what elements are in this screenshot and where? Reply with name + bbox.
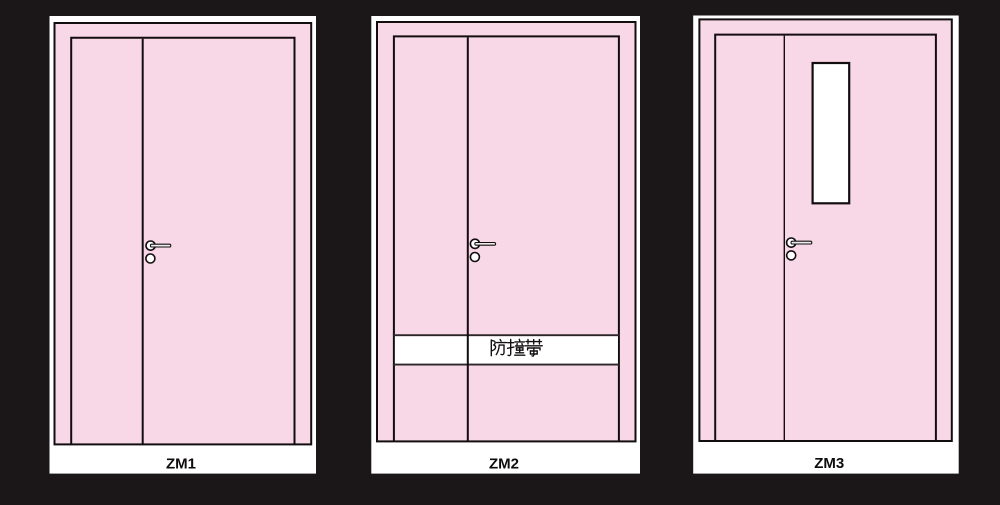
svg-text:ZM1: ZM1 xyxy=(166,455,196,472)
svg-text:ZM2: ZM2 xyxy=(489,455,519,472)
svg-text:ZM3: ZM3 xyxy=(814,455,844,472)
